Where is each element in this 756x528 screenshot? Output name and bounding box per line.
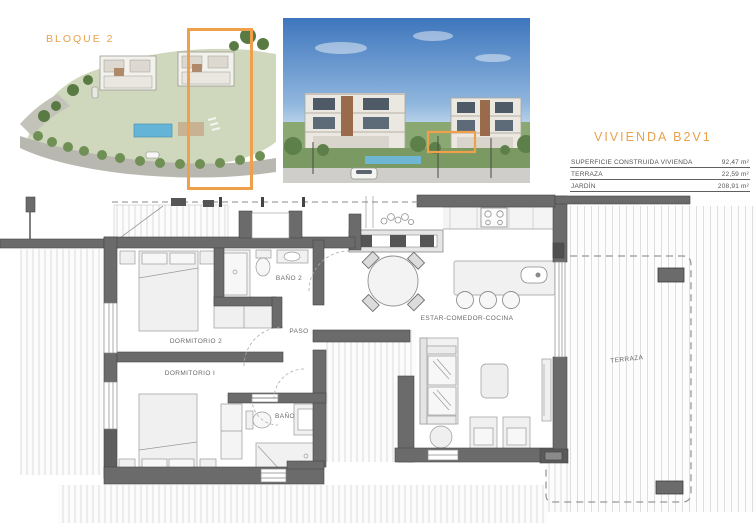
floor-plan: DORMITORIO 2 BAÑO 2 PASO DORMITORIO I BA… (0, 0, 756, 528)
tv-unit (542, 359, 551, 421)
room-label-dormitorio-2: DORMITORIO 2 (170, 338, 222, 345)
kitchen-island (454, 261, 555, 309)
bed-dormitorio-1 (119, 394, 242, 472)
kitchen-counter (424, 207, 555, 229)
facade-niche (252, 213, 289, 238)
side-table (430, 426, 452, 448)
sofa (420, 338, 458, 424)
stove (481, 208, 507, 227)
room-label-estar: ESTAR-COMEDOR-COCINA (421, 315, 514, 322)
site-unit-highlight-box (187, 28, 253, 190)
room-label-dormitorio-1: DORMITORIO I (165, 370, 216, 377)
bed-dormitorio-2 (120, 251, 215, 331)
terrace-hatch (568, 206, 756, 512)
room-label-banio-2: BAÑO 2 (276, 273, 302, 282)
living-room-furniture (420, 338, 551, 449)
dining-table (362, 252, 424, 312)
brochure-page: BLOQUE 2 (0, 0, 756, 528)
coffee-table (481, 364, 508, 398)
room-label-banio: BAÑO (275, 411, 295, 420)
banio2-fixtures (219, 250, 308, 298)
room-label-paso: PASO (289, 328, 308, 335)
armchairs (470, 417, 530, 449)
